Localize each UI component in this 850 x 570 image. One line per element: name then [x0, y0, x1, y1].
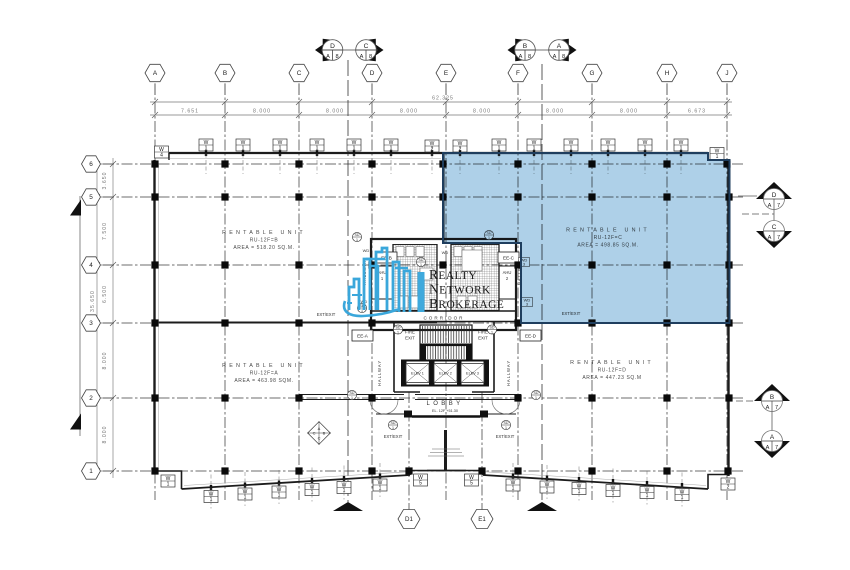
svg-text:ELEV 1: ELEV 1	[411, 372, 424, 376]
svg-text:1: 1	[397, 331, 399, 335]
svg-text:D: D	[772, 192, 777, 199]
svg-text:WD: WD	[363, 248, 370, 253]
svg-text:A: A	[557, 43, 562, 50]
svg-text:1: 1	[535, 396, 537, 400]
svg-text:8.000: 8.000	[620, 109, 638, 115]
svg-text:7.500: 7.500	[102, 222, 108, 240]
svg-text:A: A	[326, 54, 330, 60]
svg-text:EL. 12F +51.30: EL. 12F +51.30	[432, 409, 458, 413]
svg-text:HALLWAY: HALLWAY	[377, 360, 382, 386]
svg-text:A: A	[766, 405, 770, 411]
svg-text:SD: SD	[504, 421, 509, 425]
svg-text:D1: D1	[405, 516, 413, 523]
svg-text:D: D	[330, 43, 335, 50]
svg-text:ELEV 3: ELEV 3	[466, 372, 479, 376]
svg-text:8: 8	[562, 54, 565, 60]
svg-text:RU-12F=B: RU-12F=B	[250, 238, 279, 244]
svg-text:NETWORK: NETWORK	[429, 282, 491, 297]
svg-text:SD: SD	[419, 258, 424, 262]
svg-text:CORRIDOR: CORRIDOR	[423, 316, 464, 321]
svg-text:6.500: 6.500	[102, 285, 108, 303]
svg-text:F: F	[516, 70, 520, 77]
svg-text:35.650: 35.650	[90, 290, 96, 312]
svg-text:8: 8	[335, 54, 338, 60]
svg-text:E: E	[444, 70, 448, 77]
svg-text:EXT/EXIT: EXT/EXIT	[317, 312, 336, 317]
svg-text:EXT/EXIT: EXT/EXIT	[384, 434, 403, 439]
svg-text:8.000: 8.000	[326, 109, 344, 115]
svg-text:2: 2	[727, 485, 730, 491]
svg-text:7: 7	[775, 445, 778, 451]
svg-text:SD: SD	[355, 233, 360, 237]
svg-text:B: B	[523, 43, 528, 50]
svg-text:8.000: 8.000	[102, 426, 108, 444]
svg-text:EE-D: EE-D	[525, 334, 537, 339]
svg-text:SD: SD	[534, 391, 539, 395]
svg-text:B: B	[770, 394, 774, 401]
svg-text:1: 1	[392, 426, 394, 430]
svg-text:A: A	[153, 70, 158, 77]
svg-text:G: G	[590, 70, 595, 77]
svg-text:FIRE: FIRE	[405, 330, 415, 335]
svg-text:1: 1	[167, 482, 170, 488]
svg-text:4: 4	[160, 153, 163, 159]
svg-text:4: 4	[89, 262, 93, 269]
svg-text:EXT/EXIT: EXT/EXIT	[496, 434, 515, 439]
svg-text:7: 7	[777, 203, 780, 209]
svg-text:FIRE: FIRE	[478, 330, 488, 335]
svg-text:8.000: 8.000	[102, 352, 108, 370]
svg-text:1: 1	[351, 396, 353, 400]
svg-text:C: C	[772, 224, 777, 231]
svg-text:2: 2	[89, 395, 93, 402]
svg-text:E1: E1	[478, 516, 486, 523]
svg-text:8.000: 8.000	[473, 109, 491, 115]
svg-text:8: 8	[369, 54, 372, 60]
svg-text:A: A	[519, 54, 523, 60]
svg-text:D: D	[370, 70, 375, 77]
svg-text:1: 1	[505, 426, 507, 430]
svg-text:RENTABLE UNIT: RENTABLE UNIT	[570, 360, 654, 366]
svg-text:62.325: 62.325	[432, 96, 454, 102]
svg-text:EE-C: EE-C	[503, 256, 515, 261]
svg-text:1: 1	[420, 263, 422, 267]
svg-text:A: A	[318, 426, 321, 431]
svg-text:H: H	[665, 70, 670, 77]
svg-text:SD: SD	[350, 391, 355, 395]
svg-text:A: A	[553, 54, 557, 60]
svg-text:C: C	[364, 43, 369, 50]
svg-text:5: 5	[470, 481, 473, 487]
svg-text:1: 1	[491, 331, 493, 335]
svg-text:A: A	[766, 445, 770, 451]
svg-text:8.000: 8.000	[253, 109, 271, 115]
svg-text:3.650: 3.650	[102, 172, 108, 190]
svg-text:5: 5	[419, 481, 422, 487]
svg-text:LOBBY: LOBBY	[426, 401, 463, 407]
svg-text:B: B	[323, 431, 326, 436]
svg-text:WD: WD	[442, 250, 449, 255]
svg-text:ELEV 2: ELEV 2	[439, 372, 452, 376]
svg-text:1: 1	[356, 238, 358, 242]
svg-text:8.000: 8.000	[546, 109, 564, 115]
svg-text:SD: SD	[391, 421, 396, 425]
svg-text:EE-A: EE-A	[357, 334, 369, 339]
svg-text:REALTY: REALTY	[429, 267, 477, 282]
svg-text:SD: SD	[490, 326, 495, 330]
svg-text:AREA = 447.23 SQ.M: AREA = 447.23 SQ.M	[582, 375, 641, 381]
svg-text:HALLWAY: HALLWAY	[506, 360, 511, 386]
svg-text:J: J	[725, 70, 728, 77]
svg-text:AREA = 463.98 SQM.: AREA = 463.98 SQM.	[234, 378, 293, 384]
svg-text:6.673: 6.673	[688, 109, 706, 115]
svg-text:3: 3	[89, 320, 93, 327]
svg-text:EXIT: EXIT	[405, 336, 415, 341]
svg-text:C: C	[297, 70, 302, 77]
svg-text:AHU: AHU	[503, 270, 512, 275]
svg-text:1: 1	[89, 468, 93, 475]
svg-text:RENTABLE UNIT: RENTABLE UNIT	[222, 363, 306, 369]
svg-text:5: 5	[89, 194, 93, 201]
svg-text:RENTABLE UNIT: RENTABLE UNIT	[222, 230, 306, 236]
svg-text:C: C	[313, 431, 316, 436]
svg-text:AREA = 518.20 SQ.M.: AREA = 518.20 SQ.M.	[233, 245, 294, 251]
svg-text:A: A	[360, 54, 364, 60]
svg-text:7.651: 7.651	[181, 109, 199, 115]
svg-text:A: A	[768, 203, 772, 209]
svg-text:B: B	[223, 70, 227, 77]
svg-text:7: 7	[775, 405, 778, 411]
svg-text:EXIT: EXIT	[478, 336, 488, 341]
svg-text:RU-12F=D: RU-12F=D	[598, 368, 627, 374]
svg-text:C: C	[318, 436, 321, 441]
svg-text:7: 7	[777, 235, 780, 241]
svg-text:8: 8	[528, 54, 531, 60]
svg-text:SD: SD	[396, 326, 401, 330]
svg-text:A: A	[768, 235, 772, 241]
svg-text:A: A	[770, 434, 775, 441]
svg-text:RU-12F=A: RU-12F=A	[250, 371, 279, 377]
svg-text:BROKERAGE: BROKERAGE	[429, 296, 504, 311]
svg-text:8.000: 8.000	[400, 109, 418, 115]
svg-text:6: 6	[89, 161, 93, 168]
